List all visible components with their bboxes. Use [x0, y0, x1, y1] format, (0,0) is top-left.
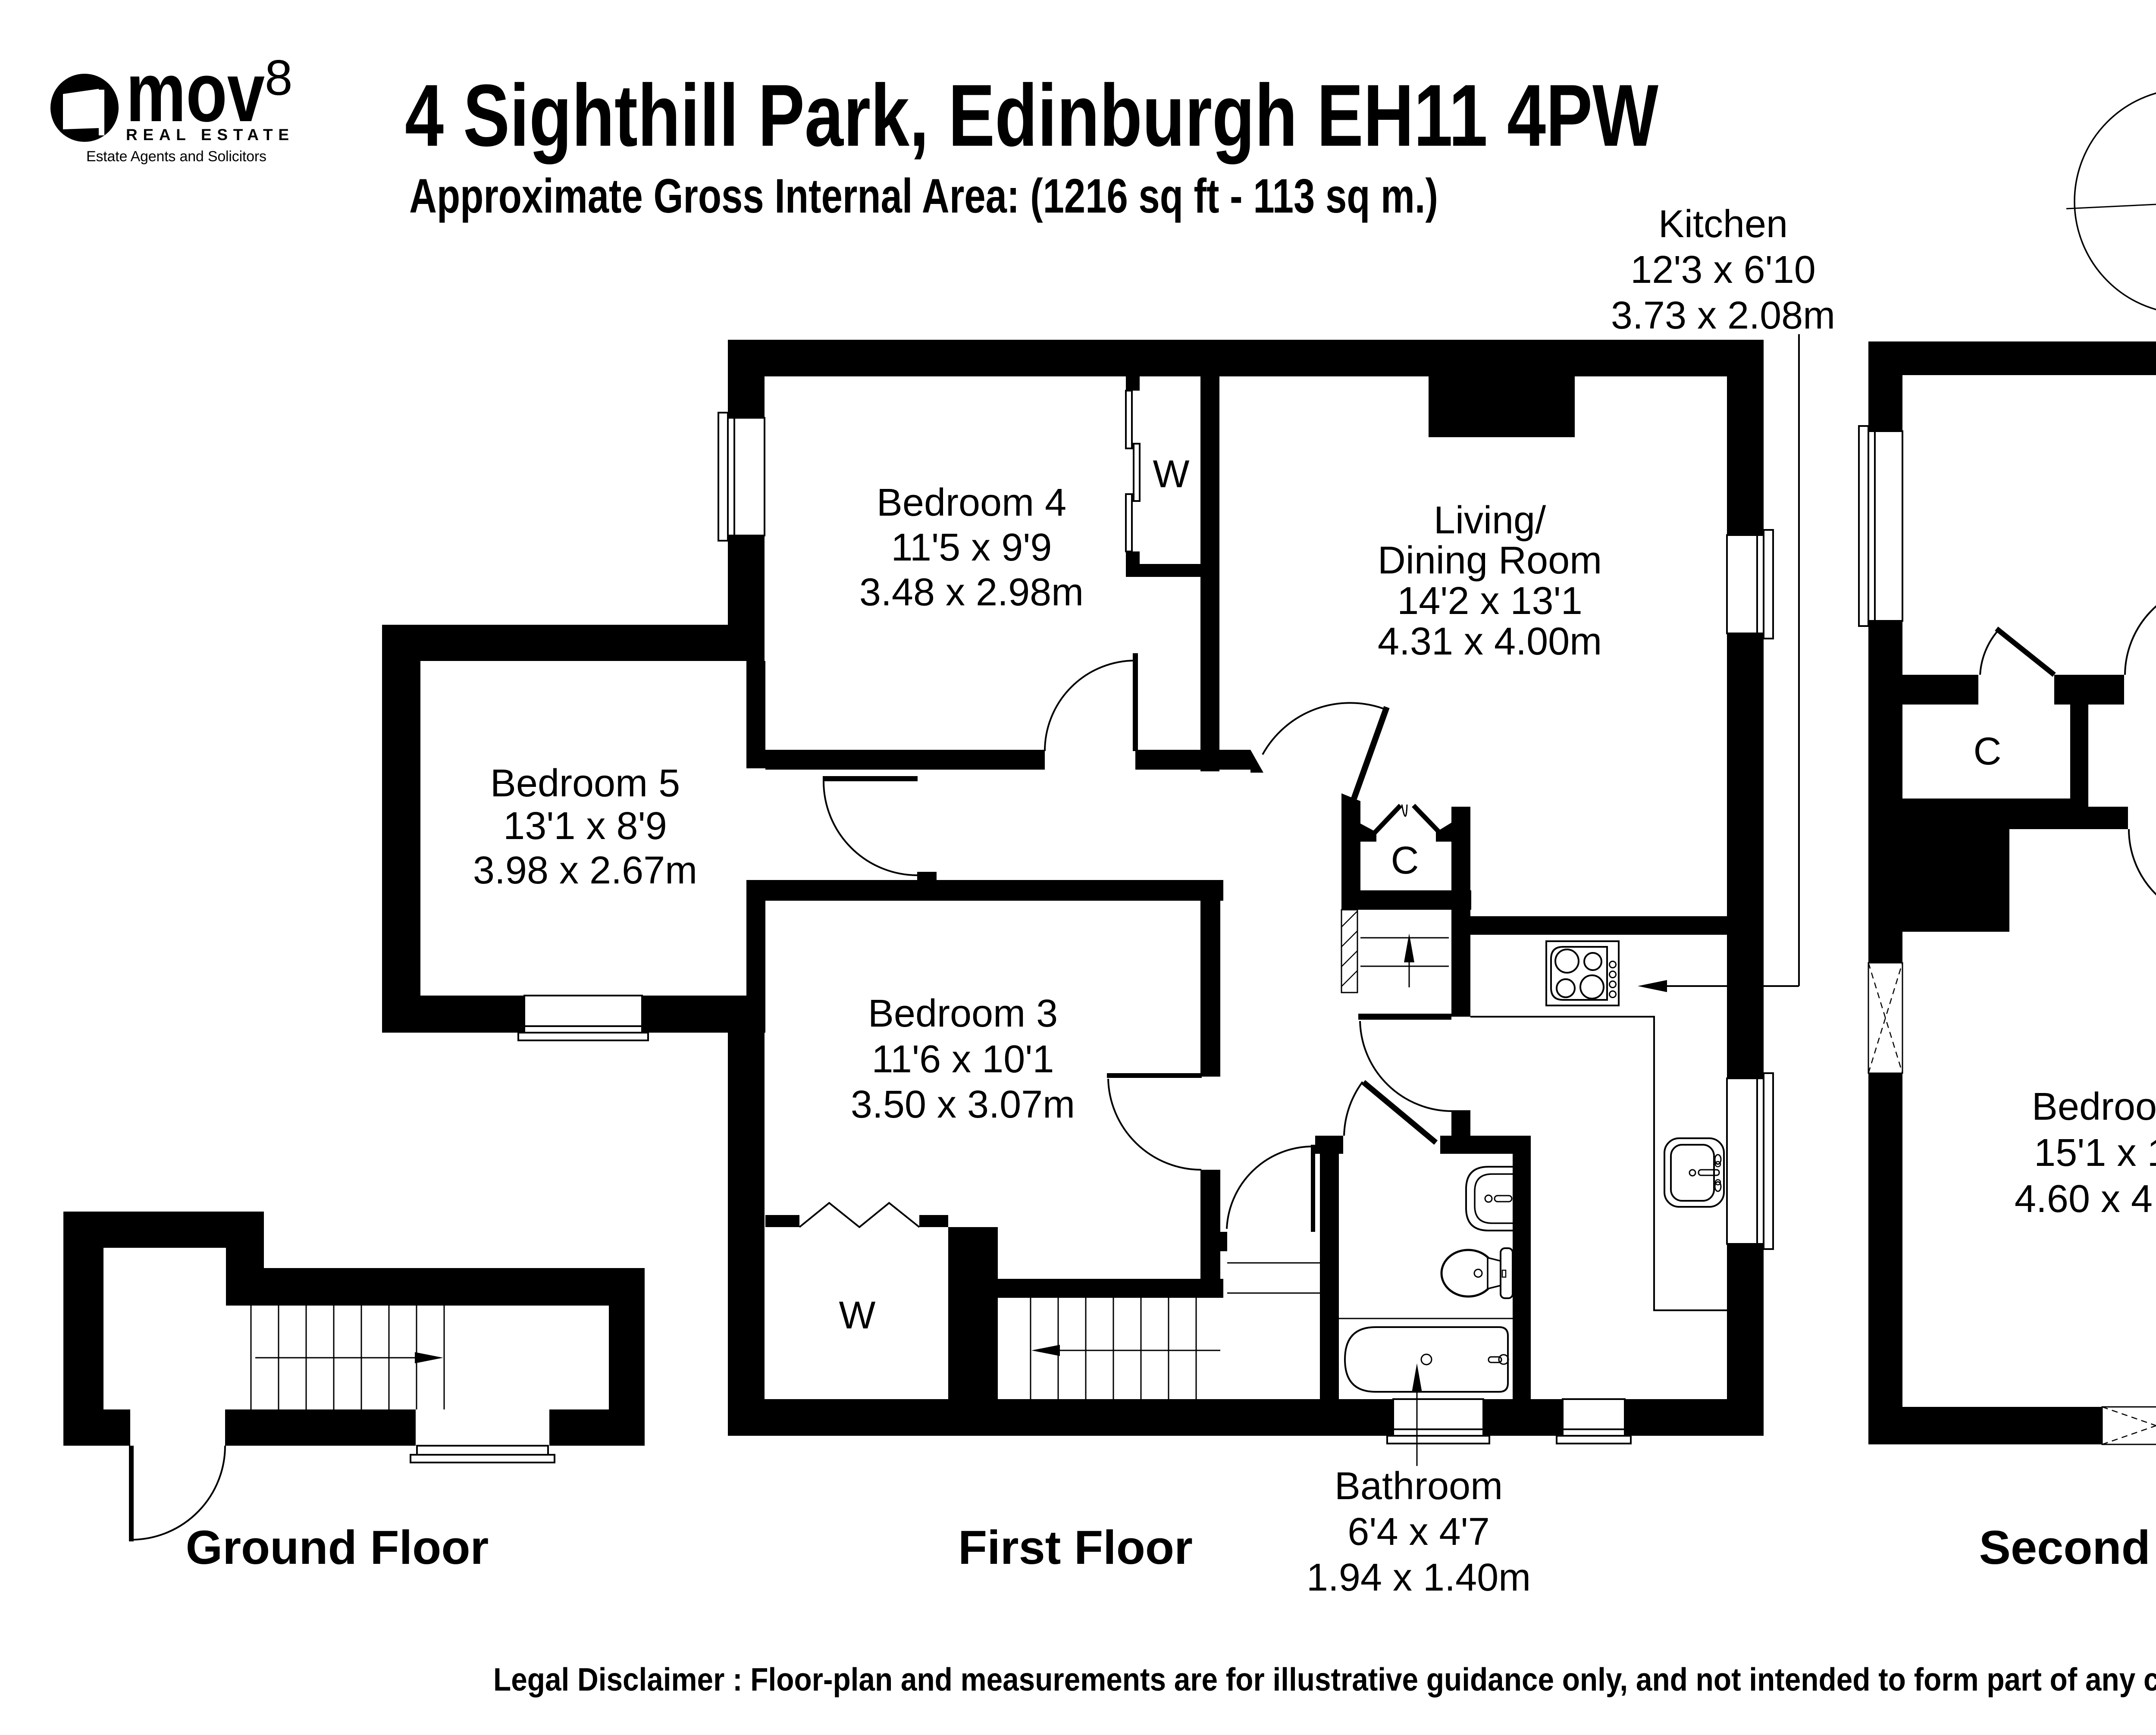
svg-text:Bedroom 2: Bedroom 2	[2032, 1085, 2156, 1128]
svg-text:Legal Disclaimer : Floor-plan: Legal Disclaimer : Floor-plan and measur…	[493, 1661, 2156, 1697]
svg-text:8: 8	[265, 50, 293, 106]
svg-text:W: W	[839, 1294, 876, 1337]
svg-text:3.73 x 2.08m: 3.73 x 2.08m	[1611, 294, 1835, 337]
svg-text:1.94 x 1.40m: 1.94 x 1.40m	[1307, 1556, 1531, 1599]
svg-text:4.60 x 4.06m: 4.60 x 4.06m	[2015, 1178, 2156, 1221]
svg-text:REAL ESTATE: REAL ESTATE	[126, 126, 289, 144]
svg-text:First Floor: First Floor	[958, 1521, 1193, 1574]
svg-text:Bedroom 5: Bedroom 5	[490, 762, 680, 805]
svg-text:15'1 x 13'4: 15'1 x 13'4	[2034, 1131, 2156, 1174]
svg-text:4.31 x 4.00m: 4.31 x 4.00m	[1378, 620, 1602, 663]
svg-text:Living/: Living/	[1434, 499, 1546, 542]
svg-text:Estate Agents and Solicitors: Estate Agents and Solicitors	[86, 148, 266, 165]
svg-text:Bathroom: Bathroom	[1335, 1465, 1503, 1508]
svg-text:3.48 x 2.98m: 3.48 x 2.98m	[859, 571, 1084, 614]
svg-text:12'3 x 6'10: 12'3 x 6'10	[1630, 248, 1816, 291]
svg-text:Bedroom 3: Bedroom 3	[868, 992, 1058, 1035]
svg-text:Dining Room: Dining Room	[1378, 539, 1602, 582]
svg-text:3.50 x 3.07m: 3.50 x 3.07m	[851, 1083, 1075, 1126]
svg-text:Bedroom 4: Bedroom 4	[877, 481, 1066, 524]
svg-text:C: C	[1974, 730, 2002, 773]
svg-text:11'6 x 10'1: 11'6 x 10'1	[871, 1038, 1054, 1081]
svg-text:4 Sighthill Park, Edinburgh EH: 4 Sighthill Park, Edinburgh EH11 4PW	[405, 66, 1658, 165]
svg-text:14'2 x 13'1: 14'2 x 13'1	[1397, 579, 1583, 623]
svg-text:Kitchen: Kitchen	[1658, 203, 1788, 246]
svg-text:6'4 x 4'7: 6'4 x 4'7	[1347, 1510, 1490, 1553]
svg-text:mov: mov	[126, 45, 265, 139]
svg-text:Second Floor: Second Floor	[1979, 1521, 2156, 1574]
svg-text:Ground Floor: Ground Floor	[186, 1521, 489, 1574]
svg-text:Approximate Gross Internal Are: Approximate Gross Internal Area: (1216 s…	[409, 169, 1438, 223]
svg-text:11'5 x 9'9: 11'5 x 9'9	[891, 526, 1052, 569]
svg-text:W: W	[1153, 453, 1190, 496]
svg-text:C: C	[1391, 839, 1419, 882]
svg-text:3.98 x 2.67m: 3.98 x 2.67m	[473, 849, 697, 892]
svg-text:13'1 x 8'9: 13'1 x 8'9	[503, 805, 667, 848]
